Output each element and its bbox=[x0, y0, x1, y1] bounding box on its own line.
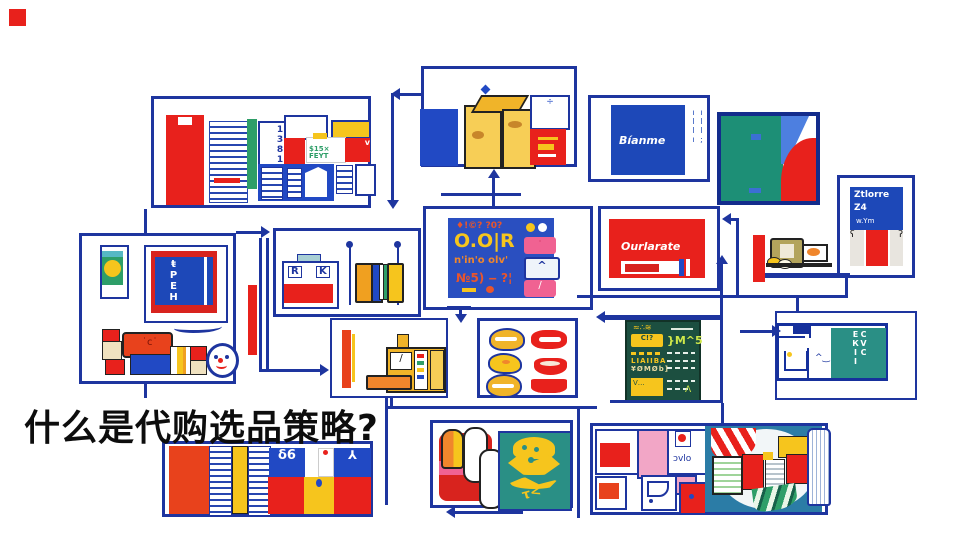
price-card: $15× FEYT bbox=[306, 137, 346, 163]
store-line1: Ztlorre bbox=[854, 191, 889, 200]
red-tag-box: v bbox=[345, 138, 370, 162]
arrow-down-bakery bbox=[455, 314, 467, 323]
capsule-orange bbox=[441, 429, 464, 469]
red-block-bl bbox=[268, 477, 304, 514]
connector-bottom-v2 bbox=[390, 396, 393, 408]
grid-row3: n'in'o olv' bbox=[454, 256, 508, 266]
blue-tray bbox=[258, 164, 334, 201]
basket bbox=[802, 244, 828, 262]
big-frame: ŧPEH bbox=[144, 245, 228, 323]
arrow-right-plan bbox=[772, 325, 781, 337]
striped-box bbox=[170, 346, 192, 375]
panel-cartons: ÷ bbox=[421, 66, 577, 167]
room-pink-top bbox=[637, 429, 670, 479]
room-red-small bbox=[595, 476, 627, 510]
connector-split-v bbox=[577, 406, 580, 518]
menu-block-text: V… bbox=[633, 380, 645, 387]
red-cube bbox=[190, 346, 207, 361]
teal-vertical-text: CVC ЕКІІ bbox=[851, 330, 867, 376]
connector-bakery-stub bbox=[447, 306, 471, 309]
key-dot-white bbox=[538, 223, 547, 232]
connector-dual-v1 bbox=[259, 238, 262, 371]
slash-mark: / bbox=[538, 280, 541, 291]
connector-menu-bottom bbox=[610, 400, 723, 403]
register-glyph-right: K bbox=[316, 266, 330, 278]
arrow-right-kitchen bbox=[320, 364, 329, 376]
room-curved-desk bbox=[641, 475, 677, 511]
connector-right-v bbox=[736, 219, 739, 298]
red-bar bbox=[753, 235, 765, 282]
grid-big-glyphs: O.O|R bbox=[454, 232, 515, 251]
menu-label-chip: C!? bbox=[631, 334, 663, 347]
bun-3 bbox=[486, 374, 522, 398]
shelf-tan bbox=[102, 341, 122, 360]
arrow-right-register bbox=[261, 226, 270, 238]
panel-blue-sign: Bíanme ıll; ıllı bbox=[588, 95, 710, 182]
arrow-down-register bbox=[387, 200, 399, 209]
door-right: ʔ bbox=[890, 230, 903, 266]
red-small-box bbox=[284, 138, 305, 165]
store-line3: w.Ym bbox=[856, 218, 874, 225]
room-script: ɔvlo bbox=[667, 429, 707, 475]
diamond-mark bbox=[481, 85, 491, 95]
room-red-bottom bbox=[679, 482, 707, 515]
arrow-up-cartons bbox=[488, 169, 500, 178]
fruit-picture bbox=[100, 245, 129, 299]
menu-label-text: C!? bbox=[641, 334, 653, 342]
floor-script-text: ɔvlo bbox=[673, 455, 691, 464]
register-glyph-left: R bbox=[288, 266, 302, 278]
card-1381: 1381 bbox=[258, 121, 287, 169]
panel-brand: Ourlarate bbox=[598, 206, 720, 291]
shelf-red-low bbox=[105, 359, 125, 375]
yellow-bit bbox=[763, 452, 773, 460]
rack-pole-left bbox=[349, 247, 351, 305]
connector-mid-long bbox=[577, 295, 847, 298]
panel-capsules-emblem: τ< bbox=[430, 420, 573, 508]
bun-2 bbox=[488, 353, 522, 374]
red-stack bbox=[531, 379, 567, 393]
connector-loop-stub bbox=[796, 297, 799, 311]
teal-mark-1 bbox=[751, 134, 761, 140]
menu-yellow-block: V… bbox=[631, 378, 663, 396]
emblem-teal-square: τ< bbox=[498, 431, 572, 511]
red-bowl bbox=[534, 358, 567, 375]
shelf-line bbox=[766, 263, 832, 267]
connector-dual-v2 bbox=[266, 238, 269, 371]
connector-plan-entry bbox=[721, 403, 724, 423]
connector-bottom-v1 bbox=[385, 396, 388, 505]
panel-plan-platter: ɔvlo bbox=[590, 423, 828, 515]
emblem-mark: τ< bbox=[521, 485, 543, 503]
sign-side-marks: ıll; ıllı bbox=[689, 108, 705, 168]
orange-table bbox=[366, 375, 412, 390]
snowman-face bbox=[206, 343, 239, 378]
arrow-left-brand bbox=[722, 213, 731, 225]
yellow-block bbox=[304, 477, 334, 514]
plan-teal-square: CVC ЕКІІ bbox=[831, 328, 886, 378]
door-red bbox=[866, 230, 888, 266]
thick-blue-shelf-line bbox=[765, 273, 850, 278]
blue-sign-square: Bíanme bbox=[611, 105, 685, 175]
box-scribbles-2 bbox=[508, 121, 522, 128]
sofa-blue-base bbox=[130, 354, 171, 375]
connector-top-v bbox=[391, 93, 394, 201]
menu-arrow-mark: Λ bbox=[685, 386, 691, 395]
panel-documents-shelf: 1381 $15× FEYT v bbox=[151, 96, 371, 208]
connector-grid-cross bbox=[441, 193, 521, 196]
register-body: R K bbox=[282, 261, 339, 309]
arrow-left-menu bbox=[596, 311, 605, 323]
brand-red-field: Ourlarate bbox=[609, 219, 705, 278]
teal-mark-2 bbox=[749, 188, 761, 193]
blue-glyph-right: ⅄ bbox=[334, 448, 371, 477]
key-pink-top: · bbox=[524, 237, 556, 254]
panel-kitchen: / bbox=[330, 318, 448, 398]
strip-yellow bbox=[387, 263, 404, 303]
panel-icon-grid: ♦!©? ?0? O.O|R n'in'o olv' №5) ‒ ?¦ · ^ … bbox=[423, 206, 593, 310]
arrow-up-brand bbox=[716, 255, 728, 264]
connector-into-plan bbox=[740, 330, 774, 333]
grid-row4: №5) ‒ ?¦ bbox=[456, 272, 512, 284]
connector-bottom-long bbox=[388, 406, 597, 409]
brand-text: Ourlarate bbox=[621, 241, 680, 252]
card-dots bbox=[355, 164, 376, 196]
connector-under-capsules bbox=[452, 511, 523, 514]
red-block-br bbox=[334, 477, 371, 514]
white-label-card: ÷ bbox=[530, 95, 570, 130]
menu-rows1: LIAIIBA bbox=[631, 358, 666, 365]
room-red-frame bbox=[595, 429, 639, 475]
connector-to-brand bbox=[730, 218, 739, 221]
kitchen-yellow-sliver bbox=[352, 334, 355, 382]
panel-register: R K bbox=[273, 228, 421, 317]
illustration-canvas: 1381 $15× FEYT v ÷ bbox=[0, 0, 978, 550]
bun-1 bbox=[489, 328, 525, 351]
connector-store-down bbox=[845, 278, 848, 298]
platter-steel-bg bbox=[705, 426, 822, 512]
green-strip bbox=[247, 119, 257, 189]
panel-living-room: ŧPEH ˙c˙ bbox=[79, 233, 236, 384]
menu-glyph: }M^5 bbox=[667, 335, 703, 346]
page-title: 什么是代购选品策略? bbox=[24, 399, 379, 451]
swoosh-line bbox=[174, 322, 222, 333]
box-scribbles bbox=[472, 131, 484, 139]
arrow-left-under bbox=[446, 506, 455, 518]
red-book bbox=[166, 115, 204, 205]
red-column bbox=[169, 446, 209, 514]
price-tag-text: $15× FEYT bbox=[309, 146, 345, 160]
ribbed-column bbox=[807, 428, 831, 506]
store-sign: Ztlorre Z4 w.Ym bbox=[850, 187, 903, 230]
stub-box1-box6 bbox=[144, 209, 147, 233]
connector-menu-up bbox=[720, 262, 723, 317]
panel-menu-board: ≈∴≋ C!? }M^5 LIAIIBA ¥ØMØb] V… Λ bbox=[625, 320, 701, 403]
blue-glyph-left: δ6 bbox=[269, 448, 305, 477]
tag-mark: v bbox=[365, 138, 370, 147]
red-label-card bbox=[530, 129, 566, 165]
menu-rows2: ¥ØMØb] bbox=[631, 366, 669, 373]
stub-below-box6 bbox=[144, 384, 147, 398]
connector-box6-top bbox=[236, 231, 262, 234]
blue-block bbox=[420, 109, 458, 166]
green-striped-wedge bbox=[752, 483, 799, 513]
lined-box-green bbox=[712, 456, 743, 495]
key-white-caret: ^ bbox=[524, 257, 560, 280]
yellow-column bbox=[232, 446, 248, 514]
tan-cube bbox=[190, 360, 207, 375]
red-swirl bbox=[531, 330, 567, 349]
key-dot-mark: · bbox=[539, 237, 542, 246]
red-block-1 bbox=[742, 454, 764, 490]
connector-to-kitchen bbox=[259, 369, 321, 372]
card-lines bbox=[336, 165, 353, 194]
caret-mark: ^ bbox=[537, 259, 546, 272]
menu-scribble: ≈∴≋ bbox=[633, 324, 652, 332]
red-block-2 bbox=[786, 454, 809, 484]
panel-bakery bbox=[477, 318, 578, 398]
sign-text: Bíanme bbox=[619, 135, 665, 146]
connector-menu-right bbox=[720, 315, 723, 403]
document-column bbox=[209, 121, 248, 203]
store-line2: Z4 bbox=[854, 204, 867, 213]
panel-teal-abstract bbox=[717, 112, 820, 205]
red-pillar bbox=[248, 285, 257, 355]
connector-menu-top bbox=[602, 315, 723, 320]
kitchen-red-bar bbox=[342, 330, 351, 388]
doc-column-1 bbox=[209, 446, 232, 516]
plan-squiggle: ^‿ bbox=[815, 354, 830, 363]
key-dot-yellow bbox=[526, 223, 535, 232]
plan-desk bbox=[784, 351, 808, 371]
frame-code: ŧPEH bbox=[168, 259, 178, 303]
panel-floorplan-small: ^‿ CVC ЕКІІ bbox=[776, 323, 888, 381]
key-pink-slash: / bbox=[524, 280, 556, 297]
connector-grid-up bbox=[492, 176, 495, 206]
panel-files-blocks: δ6 ⅄ bbox=[162, 441, 373, 517]
red-square-marker bbox=[9, 9, 26, 26]
white-divider bbox=[318, 448, 334, 477]
